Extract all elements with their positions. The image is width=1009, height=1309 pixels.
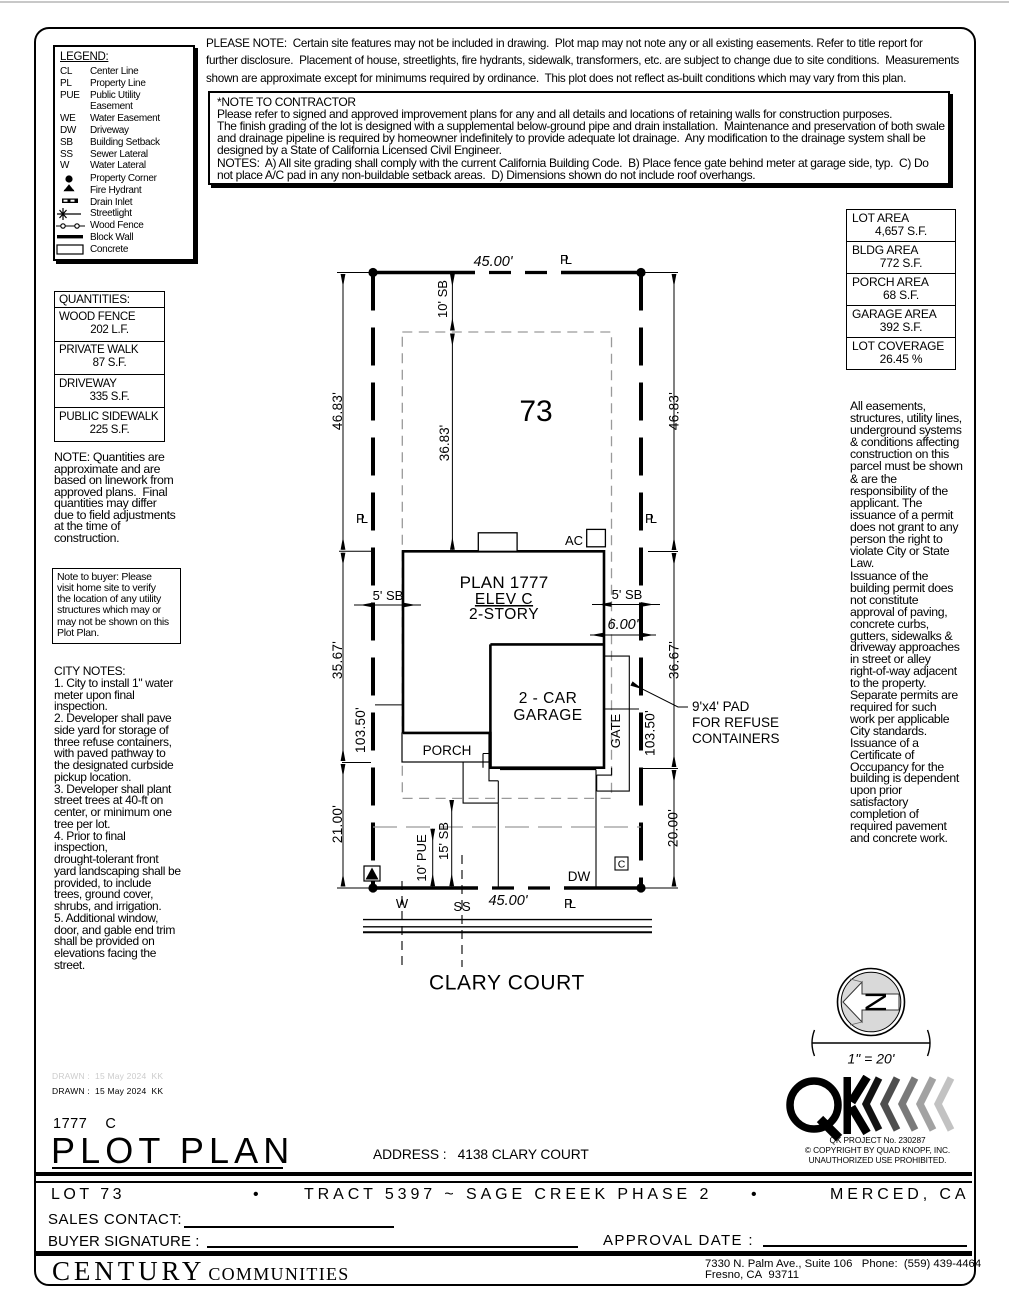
svg-text:2-STORY: 2-STORY: [469, 606, 539, 623]
svg-text:CONTAINERS: CONTAINERS: [692, 731, 780, 746]
svg-text:10' SB: 10' SB: [435, 280, 450, 318]
svg-text:1" = 20': 1" = 20': [848, 1051, 896, 1067]
svg-text:5' SB: 5' SB: [373, 588, 404, 603]
svg-text:35.67': 35.67': [330, 641, 345, 679]
svg-text:73: 73: [519, 395, 552, 428]
svg-text:15' SB: 15' SB: [436, 822, 451, 860]
svg-text:PL: PL: [645, 511, 657, 526]
svg-text:PLAN 1777: PLAN 1777: [460, 573, 549, 592]
svg-text:20.00': 20.00': [666, 809, 681, 847]
svg-text:C: C: [618, 859, 626, 871]
svg-text:N: N: [860, 991, 893, 1013]
svg-text:9'x4' PAD: 9'x4' PAD: [692, 699, 750, 714]
svg-text:45.00': 45.00': [473, 254, 513, 270]
svg-text:W: W: [396, 896, 409, 911]
svg-text:AC: AC: [565, 533, 583, 548]
svg-text:GATE: GATE: [608, 713, 623, 748]
svg-text:GARAGE: GARAGE: [513, 707, 582, 724]
svg-text:21.00': 21.00': [330, 805, 345, 843]
svg-text:36.83': 36.83': [437, 425, 452, 461]
svg-text:2 - CAR: 2 - CAR: [519, 690, 578, 707]
svg-text:36.67': 36.67': [667, 641, 682, 679]
svg-text:PL: PL: [356, 511, 368, 526]
svg-text:103.50': 103.50': [353, 707, 368, 753]
svg-text:DW: DW: [568, 869, 591, 884]
svg-text:PL: PL: [560, 252, 572, 267]
svg-text:SS: SS: [453, 899, 471, 914]
svg-text:CLARY COURT: CLARY COURT: [429, 972, 585, 995]
svg-text:46.83': 46.83': [330, 392, 345, 430]
svg-text:PORCH: PORCH: [423, 743, 472, 758]
svg-text:6.00': 6.00': [608, 617, 640, 633]
svg-text:10' PUE: 10' PUE: [414, 834, 429, 882]
svg-text:PL: PL: [564, 896, 576, 911]
svg-text:45.00': 45.00': [488, 893, 528, 909]
svg-text:46.83': 46.83': [667, 392, 682, 430]
svg-text:103.50': 103.50': [643, 710, 658, 756]
svg-text:5' SB: 5' SB: [612, 587, 643, 602]
svg-text:FOR REFUSE: FOR REFUSE: [692, 715, 779, 730]
